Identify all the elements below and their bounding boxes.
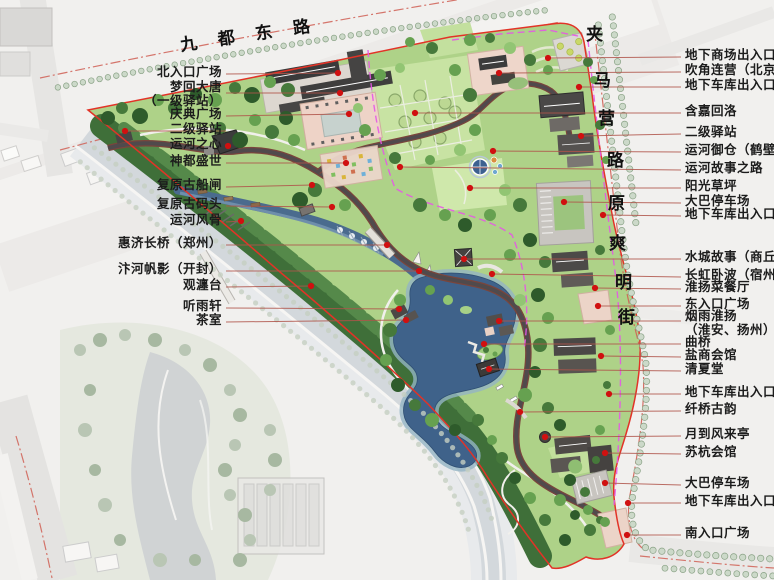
tree-icon: [113, 162, 118, 167]
tree-icon: [524, 492, 536, 504]
tree-icon: [214, 54, 220, 60]
tree-icon: [340, 34, 346, 40]
tree-icon: [539, 256, 551, 268]
tree-icon: [638, 334, 644, 340]
tree-icon: [305, 311, 310, 316]
tree-icon: [452, 493, 457, 498]
tree-icon: [610, 23, 616, 29]
tree-icon: [229, 82, 241, 94]
tree-icon: [469, 124, 481, 136]
tree-icon: [642, 544, 648, 550]
tree-icon: [472, 414, 484, 426]
tree-icon: [425, 413, 439, 427]
tree-icon: [583, 505, 593, 515]
tree-icon: [689, 567, 695, 573]
street-char: 营: [598, 104, 615, 129]
tree-icon: [427, 456, 432, 461]
tree-icon: [98, 498, 112, 512]
tree-icon: [80, 80, 86, 86]
tree-icon: [698, 568, 704, 574]
tree-icon: [623, 139, 629, 145]
tree-icon: [443, 478, 448, 483]
tree-icon: [570, 510, 580, 520]
tree-icon: [668, 549, 674, 555]
tree-icon: [92, 171, 97, 176]
tree-icon: [85, 165, 90, 170]
tree-icon: [113, 188, 118, 193]
tree-icon: [603, 93, 609, 99]
tree-icon: [529, 366, 541, 378]
tree-icon: [203, 358, 217, 372]
feature-dot: [595, 303, 601, 309]
tree-icon: [466, 16, 472, 22]
tree-icon: [740, 554, 746, 560]
tree-icon: [235, 255, 240, 260]
feature-dot: [489, 271, 495, 277]
tree-icon: [265, 125, 279, 139]
tree-icon: [758, 555, 764, 561]
tree-icon: [224, 384, 236, 396]
plan-label: 北入口广场: [157, 66, 222, 80]
street-char: 爽: [609, 229, 626, 254]
tree-icon: [402, 392, 407, 397]
tree-icon: [621, 121, 627, 127]
tree-icon: [445, 438, 450, 443]
tree-icon: [470, 475, 475, 480]
plan-label: 复原古码头: [157, 198, 222, 212]
tree-icon: [491, 13, 497, 19]
plan-label: 地下车库出入口: [685, 208, 774, 222]
tree-icon: [326, 328, 331, 333]
feature-dot: [561, 199, 567, 205]
tree-icon: [148, 216, 153, 221]
tree-icon: [725, 570, 731, 576]
tree-icon: [291, 300, 296, 305]
tree-icon: [199, 227, 204, 232]
tree-icon: [466, 527, 471, 532]
tree-icon: [595, 245, 605, 255]
tree-icon: [268, 453, 282, 467]
tree-icon: [449, 424, 461, 436]
tree-icon: [189, 59, 195, 65]
plan-label: 茶室: [196, 314, 222, 328]
tree-icon: [361, 357, 366, 362]
tree-icon: [399, 25, 405, 31]
plan-label: 地下商场出入口: [685, 49, 774, 63]
tree-icon: [499, 184, 511, 196]
tree-icon: [162, 227, 167, 232]
tree-icon: [458, 218, 472, 232]
feature-dot: [329, 204, 335, 210]
tree-icon: [232, 132, 248, 148]
tree-icon: [105, 75, 111, 81]
tree-icon: [264, 46, 270, 52]
tree-icon: [632, 211, 638, 217]
tree-icon: [543, 65, 553, 75]
feature-dot: [122, 128, 128, 134]
tree-icon: [485, 33, 495, 43]
tree-icon: [292, 192, 308, 208]
tree-icon: [629, 494, 635, 500]
feature-dot: [496, 70, 502, 76]
tree-icon: [323, 36, 329, 42]
tree-icon: [270, 283, 275, 288]
tree-icon: [371, 398, 376, 403]
feature-dot: [403, 317, 409, 323]
plan-label: 庆典广场: [170, 108, 222, 122]
tree-icon: [671, 566, 677, 572]
tree-icon: [633, 219, 639, 225]
site-plan-drawing: [0, 0, 774, 580]
tree-icon: [350, 380, 355, 385]
feature-dot: [625, 500, 631, 506]
tree-icon: [179, 344, 191, 356]
feature-dot: [461, 256, 467, 262]
plan-label: 观瀍台: [183, 279, 222, 293]
tree-icon: [89, 78, 95, 84]
tree-icon: [128, 173, 133, 178]
tree-icon: [344, 375, 349, 380]
tree-icon: [487, 435, 497, 445]
tree-icon: [409, 399, 421, 411]
tree-icon: [142, 183, 147, 188]
tree-icon: [381, 374, 386, 379]
tree-icon: [722, 553, 728, 559]
tree-icon: [636, 325, 642, 331]
tree-icon: [267, 312, 272, 317]
tree-icon: [425, 285, 435, 295]
tree-icon: [636, 459, 642, 465]
tree-icon: [264, 76, 276, 88]
tree-icon: [64, 83, 70, 89]
tree-icon: [225, 278, 230, 283]
tree-icon: [454, 144, 466, 156]
tree-icon: [598, 49, 604, 55]
tree-icon: [478, 491, 483, 496]
tree-icon: [306, 39, 312, 45]
feature-dot: [238, 218, 244, 224]
tree-icon: [456, 502, 461, 507]
feature-dot: [542, 434, 548, 440]
tree-icon: [153, 553, 167, 567]
tree-icon: [448, 486, 453, 491]
tree-icon: [323, 357, 328, 362]
feature-dot: [225, 143, 231, 149]
tree-icon: [482, 499, 487, 504]
tree-icon: [231, 52, 237, 58]
tree-icon: [55, 85, 61, 91]
street-char: 马: [594, 66, 611, 91]
tree-icon: [222, 53, 228, 59]
tree-icon: [618, 219, 624, 225]
tree-icon: [443, 295, 453, 305]
tree-icon: [770, 573, 774, 579]
tree-icon: [629, 184, 635, 190]
tree-icon: [639, 432, 645, 438]
feature-dot: [308, 283, 314, 289]
feature-dot: [397, 164, 403, 170]
street-char: 夹: [586, 20, 603, 45]
tree-icon: [410, 435, 415, 440]
feature-dot: [412, 110, 418, 116]
tree-icon: [607, 129, 613, 135]
tree-icon: [643, 360, 649, 366]
tree-icon: [531, 288, 545, 302]
tree-icon: [367, 363, 372, 368]
tree-icon: [713, 552, 719, 558]
tree-icon: [298, 40, 304, 46]
tree-icon: [378, 404, 383, 409]
street-char: 街: [618, 303, 635, 328]
tree-icon: [642, 414, 648, 420]
tree-icon: [474, 483, 479, 488]
tree-icon: [382, 28, 388, 34]
plan-label: 运河故事之路: [685, 162, 763, 176]
tree-icon: [189, 554, 201, 566]
tree-icon: [465, 467, 470, 472]
tree-icon: [767, 556, 773, 562]
tree-icon: [650, 547, 656, 553]
plan-label: 地下车库出入口: [685, 79, 774, 93]
plan-label: 运河之心: [170, 138, 222, 152]
tree-icon: [119, 329, 131, 341]
tree-icon: [359, 124, 371, 136]
tree-icon: [384, 410, 389, 415]
street-char: 明: [615, 268, 632, 293]
tree-icon: [617, 85, 623, 91]
tree-icon: [155, 222, 160, 227]
tree-icon: [625, 148, 631, 154]
tree-icon: [233, 408, 247, 422]
tree-icon: [634, 468, 640, 474]
feature-dot: [384, 242, 390, 248]
tree-icon: [460, 460, 465, 465]
tree-icon: [525, 9, 531, 15]
tree-icon: [130, 70, 136, 76]
tree-icon: [247, 49, 253, 55]
tree-icon: [364, 392, 369, 397]
tree-icon: [513, 198, 527, 212]
tree-icon: [486, 507, 491, 512]
tree-icon: [707, 569, 713, 575]
tree-icon: [734, 571, 740, 577]
tree-icon: [559, 534, 571, 546]
tree-icon: [339, 199, 351, 211]
tree-icon: [731, 554, 737, 560]
tree-icon: [395, 63, 405, 73]
tree-icon: [218, 463, 232, 477]
tree-icon: [295, 334, 300, 339]
tree-icon: [298, 305, 303, 310]
tree-icon: [404, 429, 409, 434]
tree-icon: [612, 41, 618, 47]
tree-icon: [533, 9, 539, 15]
tree-icon: [433, 463, 438, 468]
tree-icon: [618, 94, 624, 100]
tree-icon: [425, 155, 435, 165]
tree-icon: [509, 472, 521, 484]
tree-icon: [695, 551, 701, 557]
feature-dot: [602, 480, 608, 486]
tree-icon: [542, 312, 554, 324]
tree-icon: [554, 419, 566, 431]
tree-icon: [391, 378, 405, 392]
tree-icon: [99, 177, 104, 182]
plan-label: 二级驿站: [170, 123, 222, 137]
tree-icon: [580, 487, 590, 497]
tree-icon: [132, 108, 148, 124]
tree-icon: [229, 439, 241, 451]
tree-icon: [539, 514, 551, 526]
tree-icon: [337, 369, 342, 374]
feature-dot: [343, 160, 349, 166]
tree-icon: [239, 50, 245, 56]
tree-icon: [407, 24, 413, 30]
tree-icon: [348, 33, 354, 39]
tree-icon: [277, 288, 282, 293]
feature-dot: [576, 84, 582, 90]
tree-icon: [72, 81, 78, 87]
tree-icon: [353, 103, 363, 113]
tree-icon: [628, 175, 634, 181]
tree-icon: [246, 295, 251, 300]
feature-dot: [624, 532, 630, 538]
tree-icon: [415, 23, 421, 29]
tree-icon: [135, 178, 140, 183]
tree-icon: [626, 157, 632, 163]
tree-icon: [119, 194, 124, 199]
tree-icon: [416, 442, 421, 447]
plan-label: 梦回大唐（一级驿站）: [144, 81, 222, 108]
tree-icon: [554, 494, 566, 506]
plan-label: 复原古船闸: [157, 179, 222, 193]
tree-icon: [394, 294, 406, 306]
plan-label: 苏杭会馆: [685, 446, 737, 460]
tree-icon: [508, 11, 514, 17]
tree-icon: [244, 534, 256, 546]
tree-icon: [642, 405, 648, 411]
tree-icon: [256, 47, 262, 53]
tree-icon: [600, 517, 610, 527]
tree-icon: [599, 58, 605, 64]
tree-icon: [89, 464, 101, 476]
tree-icon: [263, 277, 268, 282]
tree-icon: [743, 571, 749, 577]
plan-label: 地下车库出入口: [685, 386, 774, 400]
feature-dot: [490, 148, 496, 154]
tree-icon: [253, 300, 258, 305]
feature-dot: [309, 182, 315, 188]
tree-icon: [93, 333, 107, 347]
tree-icon: [643, 396, 649, 402]
tree-icon: [716, 569, 722, 575]
tree-icon: [356, 31, 362, 37]
plan-label: 惠济长桥（郑州）: [118, 237, 222, 251]
tree-icon: [391, 416, 396, 421]
plan-label: 二级驿站: [685, 126, 737, 140]
tree-icon: [239, 289, 244, 294]
tree-icon: [244, 87, 260, 103]
tree-icon: [464, 34, 476, 46]
tree-icon: [460, 510, 465, 515]
masterplan-canvas: 九都东路 夹马营路原爽明街 北入口广场梦回大唐（一级驿站）庆典广场二级驿站运河之…: [0, 0, 774, 580]
tree-icon: [630, 193, 636, 199]
tree-icon: [314, 38, 320, 44]
tree-icon: [592, 456, 600, 464]
tree-icon: [630, 521, 636, 527]
tree-icon: [517, 10, 523, 16]
tree-icon: [78, 423, 92, 437]
plan-label: 水城故事（商丘）: [685, 251, 774, 265]
tree-icon: [398, 422, 403, 427]
tree-icon: [264, 424, 276, 436]
tree-icon: [249, 266, 254, 271]
plan-label: 听雨轩: [183, 300, 222, 314]
tree-icon: [680, 567, 686, 573]
tree-icon: [126, 199, 131, 204]
tree-icon: [449, 19, 455, 25]
tree-icon: [524, 54, 536, 66]
plan-label: 烟雨淮扬（淮安、扬州）: [685, 310, 774, 337]
tree-icon: [483, 14, 489, 20]
tree-icon: [289, 42, 295, 48]
tree-icon: [616, 76, 622, 82]
plan-label: 汴河帆影（开封）: [118, 263, 222, 277]
tree-icon: [438, 470, 443, 475]
tree-icon: [542, 8, 548, 14]
tree-icon: [426, 42, 438, 54]
tree-icon: [629, 512, 635, 518]
tree-icon: [288, 134, 300, 146]
tree-icon: [97, 76, 103, 82]
tree-icon: [455, 452, 460, 457]
tree-icon: [140, 211, 145, 216]
tree-icon: [752, 572, 758, 578]
tree-icon: [441, 20, 447, 26]
tree-icon: [148, 333, 162, 347]
tree-icon: [233, 553, 247, 567]
tree-icon: [643, 387, 649, 393]
tree-icon: [383, 323, 397, 337]
tree-icon: [238, 508, 252, 522]
tree-icon: [106, 182, 111, 187]
plan-label: 大巴停车场: [685, 477, 750, 491]
tree-icon: [413, 198, 427, 212]
tree-icon: [197, 256, 202, 261]
feature-dot: [606, 391, 612, 397]
plan-label: 淮扬菜餐厅: [685, 281, 750, 295]
tree-icon: [333, 334, 338, 339]
street-char: 原: [608, 189, 625, 214]
tree-icon: [347, 345, 352, 350]
tree-icon: [224, 489, 236, 501]
tree-icon: [114, 73, 120, 79]
tree-icon: [613, 50, 619, 56]
tree-icon: [374, 69, 386, 81]
tree-icon: [643, 378, 649, 384]
tree-icon: [354, 351, 359, 356]
plan-label: 阳光草坪: [685, 180, 737, 194]
plan-label: 含嘉回洛: [685, 105, 737, 119]
tree-icon: [120, 167, 125, 172]
tree-icon: [421, 411, 426, 416]
tree-icon: [92, 145, 97, 150]
tree-icon: [101, 111, 115, 125]
tree-icon: [227, 249, 232, 254]
feature-dot: [486, 366, 492, 372]
feature-dot: [416, 268, 422, 274]
plan-label: 盐商会馆: [685, 349, 737, 363]
